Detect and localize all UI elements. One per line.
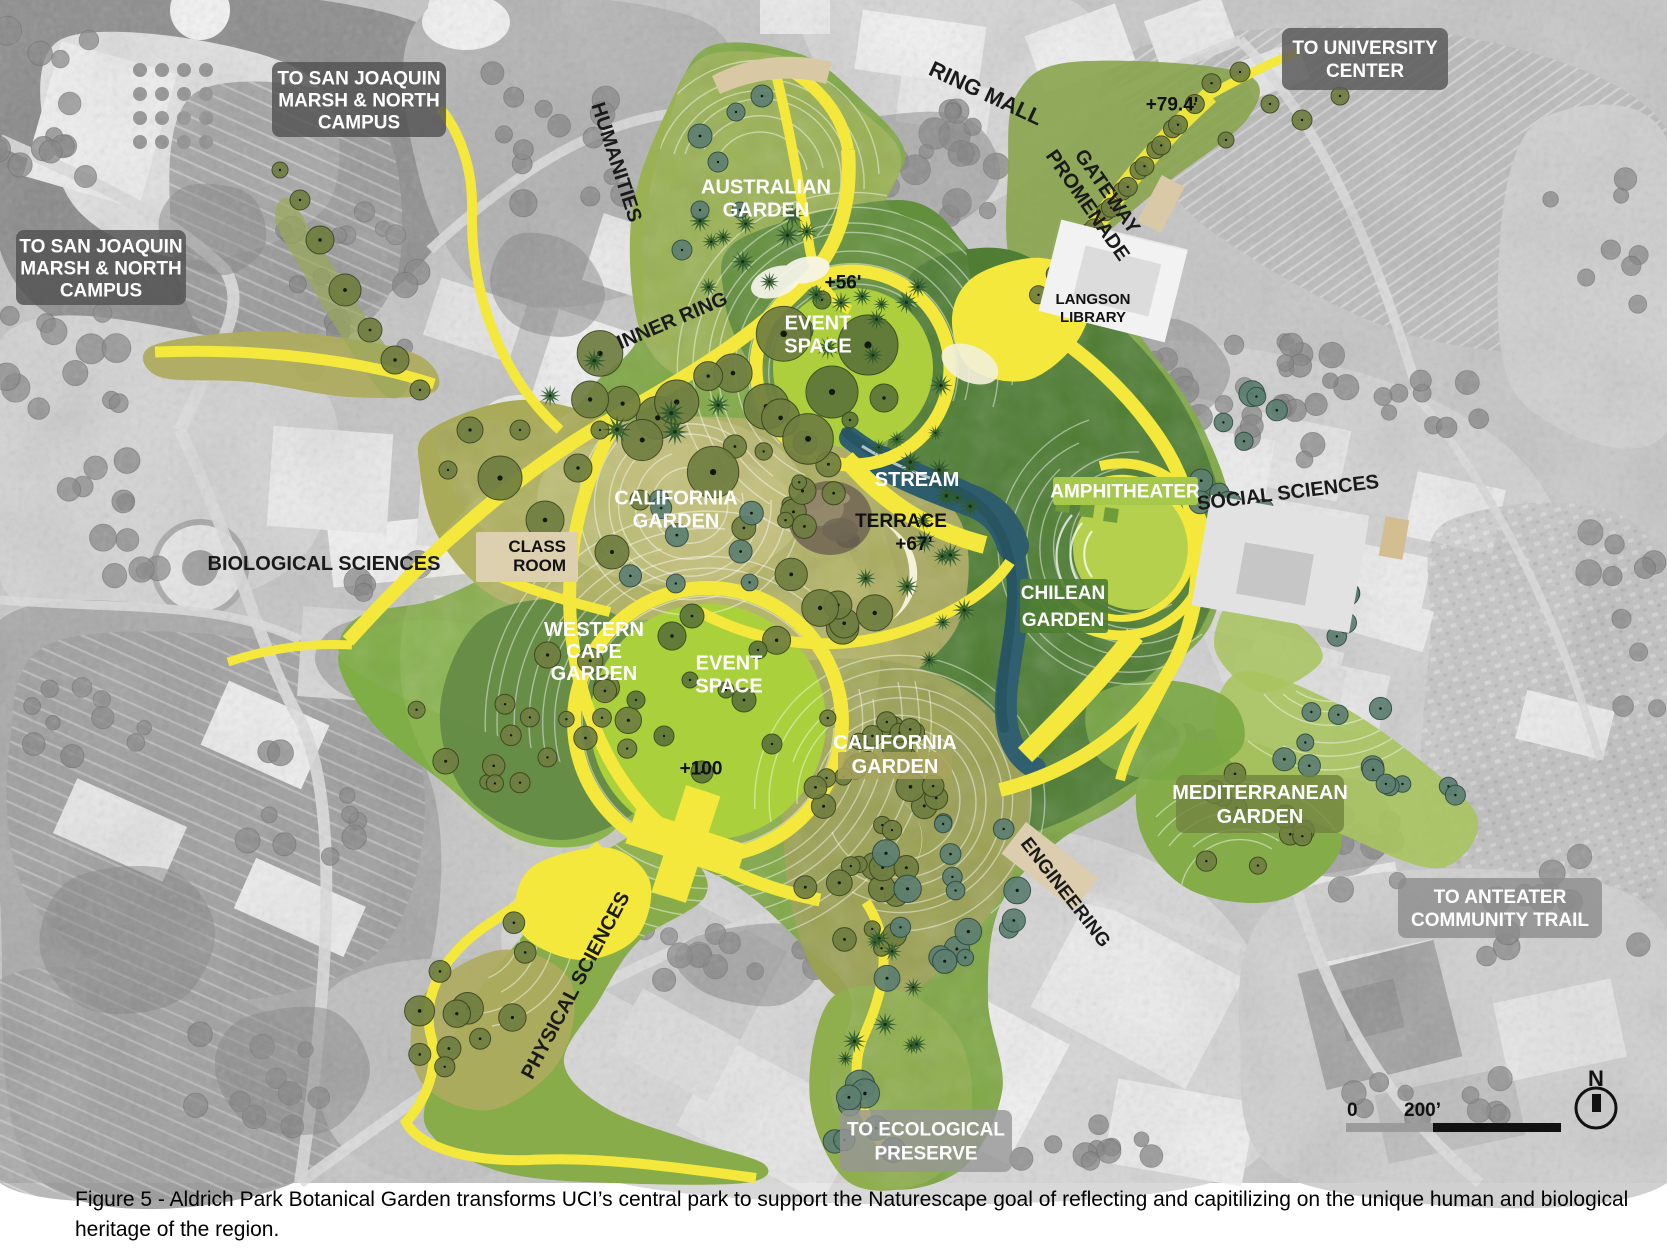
svg-text:CALIFORNIAGARDEN: CALIFORNIAGARDEN — [614, 488, 737, 533]
svg-text:EVENTSPACE: EVENTSPACE — [784, 313, 851, 358]
svg-text:TERRACE: TERRACE — [855, 511, 947, 532]
svg-text:CLASS: CLASS — [508, 537, 566, 556]
svg-text:+100: +100 — [680, 759, 723, 780]
svg-text:+56': +56' — [825, 273, 862, 294]
svg-text:EVENTSPACE: EVENTSPACE — [695, 653, 762, 698]
svg-text:BIOLOGICAL SCIENCES: BIOLOGICAL SCIENCES — [208, 553, 441, 575]
svg-text:STREAM: STREAM — [875, 469, 959, 491]
svg-text:0: 0 — [1347, 1100, 1358, 1121]
svg-text:LANGSONLIBRARY: LANGSONLIBRARY — [1056, 291, 1131, 326]
svg-text:ROOM: ROOM — [513, 556, 566, 575]
svg-text:200’: 200’ — [1404, 1100, 1441, 1121]
svg-text:AMPHITHEATER: AMPHITHEATER — [1050, 482, 1200, 503]
svg-text:+67’: +67’ — [895, 534, 933, 555]
svg-text:+79.4': +79.4' — [1146, 95, 1199, 116]
